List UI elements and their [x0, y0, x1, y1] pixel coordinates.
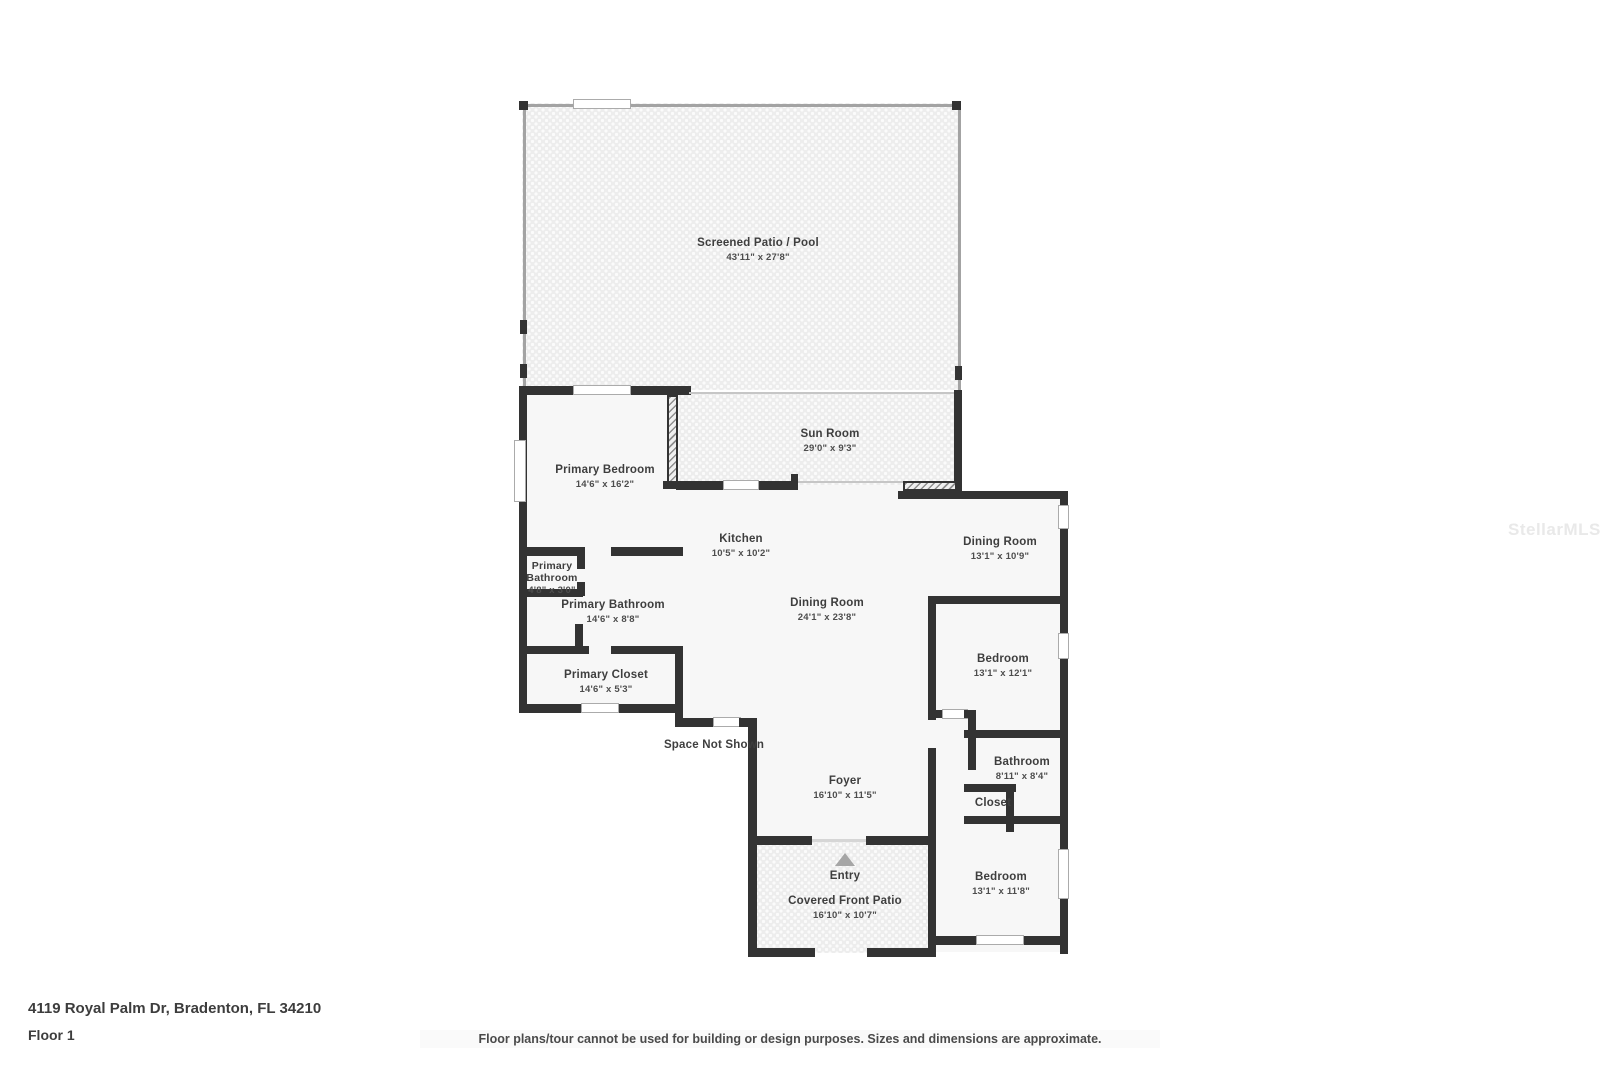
wall-kitchen-top-stub — [791, 474, 798, 484]
wall-stub-patio-left-1 — [520, 320, 527, 334]
opening-sunroom-top — [689, 392, 955, 394]
disclaimer-text: Floor plans/tour cannot be used for buil… — [420, 1030, 1160, 1048]
room-name: Bedroom — [974, 653, 1032, 667]
wall-sunroom-right — [954, 390, 962, 492]
room-label-screened-patio: Screened Patio / Pool 43'11" x 27'8" — [697, 237, 819, 263]
room-label-dining-room-main: Dining Room 24'1" x 23'8" — [790, 597, 864, 623]
room-label-primary-bathroom-small: Primary Bathroom 4'8" x 3'0" — [516, 560, 588, 596]
entry-direction-icon — [835, 853, 855, 866]
screen-door-patio-top — [573, 99, 631, 109]
window-primary-bedroom-left — [514, 440, 526, 502]
room-dims: 13'1" x 10'9" — [963, 551, 1037, 562]
wall-bedroom-mid-top — [928, 596, 1068, 604]
room-name: Sun Room — [800, 428, 859, 442]
room-dims: 13'1" x 11'8" — [972, 886, 1030, 897]
room-label-entry: Entry — [830, 870, 860, 884]
wall-stub-patio-right — [955, 366, 962, 380]
wall-foyer-bottom-left — [748, 836, 812, 845]
room-name: Covered Front Patio — [788, 895, 902, 909]
window-bedroom-lower-right — [1058, 849, 1069, 899]
room-name: Kitchen — [712, 533, 770, 547]
door-notch — [713, 717, 741, 727]
label-space-not-shown: Space Not Shown — [664, 739, 764, 753]
room-name: Foyer — [813, 775, 876, 789]
wall-stub-patio-top-left — [519, 101, 528, 110]
room-name: Bathroom — [994, 756, 1050, 770]
wall-hall-left — [928, 710, 942, 718]
room-name: Bedroom — [972, 871, 1030, 885]
room-dims: 16'10" x 11'5" — [813, 790, 876, 801]
window-primary-bedroom-top — [573, 385, 631, 395]
room-label-sun-room: Sun Room 29'0" x 9'3" — [800, 428, 859, 454]
sliding-door-sunroom — [903, 481, 957, 491]
window-primary-closet-bottom — [581, 703, 619, 713]
room-label-foyer: Foyer 16'10" x 11'5" — [813, 775, 876, 801]
window-bedroom-mid-right — [1058, 633, 1069, 659]
room-name: Dining Room — [963, 536, 1037, 550]
room-name: Primary Bathroom — [516, 560, 588, 584]
room-dims: 24'1" x 23'8" — [790, 612, 864, 623]
room-dims: 43'11" x 27'8" — [697, 252, 819, 263]
room-label-primary-closet: Primary Closet 14'6" x 5'3" — [564, 669, 648, 695]
wall-bathroom-left — [968, 718, 976, 770]
wall-primary-closet-right — [675, 646, 683, 727]
opening-sunroom-living — [798, 481, 905, 483]
floor-plan-canvas: Screened Patio / Pool 43'11" x 27'8" Sun… — [0, 0, 1600, 1066]
wall-patio-bottom-right — [867, 948, 935, 957]
wall-bathroom-top — [964, 730, 1068, 738]
wall-dining-top — [898, 491, 1068, 499]
room-dims: 10'5" x 10'2" — [712, 548, 770, 559]
wall-foyer-bottom-right — [866, 836, 935, 845]
floor-label: Floor 1 — [28, 1027, 75, 1043]
watermark: StellarMLS — [1508, 520, 1600, 540]
room-dims: 14'6" x 8'8" — [561, 614, 665, 625]
room-name: Entry — [830, 870, 860, 884]
address-text: 4119 Royal Palm Dr, Bradenton, FL 34210 — [28, 1000, 321, 1017]
wall-primary-bedroom-bottom-left — [519, 547, 585, 556]
room-label-dining-room-right: Dining Room 13'1" x 10'9" — [963, 536, 1037, 562]
room-name: Screened Patio / Pool — [697, 237, 819, 251]
room-dims: 13'1" x 12'1" — [974, 668, 1032, 679]
room-label-bedroom-lower: Bedroom 13'1" x 11'8" — [972, 871, 1030, 897]
wall-primary-bedroom-bottom-right — [611, 547, 683, 556]
room-dims: 4'8" x 3'0" — [516, 585, 588, 596]
room-name: Primary Closet — [564, 669, 648, 683]
room-dims: 29'0" x 9'3" — [800, 443, 859, 454]
wall-notch-left — [676, 718, 715, 727]
room-dims: 14'6" x 16'2" — [555, 479, 655, 490]
room-label-closet: Closet — [975, 797, 1011, 811]
room-label-covered-front-patio: Covered Front Patio 16'10" x 10'7" — [788, 895, 902, 921]
window-dining-right — [1058, 505, 1069, 529]
room-label-primary-bathroom: Primary Bathroom 14'6" x 8'8" — [561, 599, 665, 625]
wall-primary-bath-bottom-right — [611, 646, 683, 654]
wall-stub-patio-left-2 — [520, 364, 527, 378]
wall-stub-patio-top-right — [952, 101, 961, 110]
room-label-bedroom-mid: Bedroom 13'1" x 12'1" — [974, 653, 1032, 679]
room-label-kitchen: Kitchen 10'5" x 10'2" — [712, 533, 770, 559]
window-kitchen-top — [723, 480, 759, 490]
wall-bedroom-lower-top — [964, 816, 1068, 824]
room-name: Primary Bathroom — [561, 599, 665, 613]
room-dims: 16'10" x 10'7" — [788, 910, 902, 921]
window-bedroom-lower-bottom — [976, 935, 1024, 945]
room-dims: 8'11" x 8'4" — [994, 771, 1050, 782]
screen-wall-left — [523, 104, 526, 390]
wall-bedroom-mid-left — [928, 596, 936, 720]
room-name: Primary Bedroom — [555, 464, 655, 478]
wall-foyer-right — [928, 748, 936, 957]
screen-wall-right — [958, 104, 961, 392]
wall-primary-bath-stub — [575, 624, 583, 654]
room-label-bathroom: Bathroom 8'11" x 8'4" — [994, 756, 1050, 782]
room-dims: 14'6" x 5'3" — [564, 684, 648, 695]
pocket-door-primary-bedroom — [667, 395, 678, 483]
room-name: Dining Room — [790, 597, 864, 611]
wall-patio-bottom-left — [748, 948, 815, 957]
threshold-entry — [812, 839, 866, 842]
wall-hall-right — [964, 710, 976, 718]
room-label-primary-bedroom: Primary Bedroom 14'6" x 16'2" — [555, 464, 655, 490]
room-name: Space Not Shown — [664, 739, 764, 753]
room-name: Closet — [975, 797, 1011, 811]
